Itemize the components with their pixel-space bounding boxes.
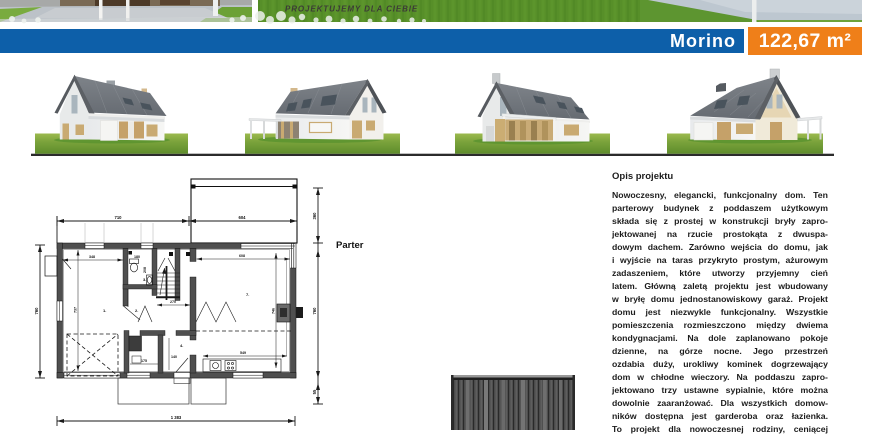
svg-text:1 383: 1 383 <box>171 415 182 420</box>
svg-text:1.: 1. <box>103 308 106 313</box>
svg-text:549: 549 <box>240 351 246 355</box>
svg-text:180: 180 <box>134 255 140 259</box>
svg-text:208: 208 <box>143 267 147 273</box>
svg-text:608: 608 <box>239 254 245 258</box>
svg-text:Parter: Parter <box>336 240 364 251</box>
svg-text:140: 140 <box>171 355 177 359</box>
svg-text:760: 760 <box>34 307 39 315</box>
svg-text:PROJEKTUJEMY DLA CIEBIE: PROJEKTUJEMY DLA CIEBIE <box>285 5 418 14</box>
svg-text:55: 55 <box>312 389 317 394</box>
svg-text:746: 746 <box>272 308 276 314</box>
svg-text:4.: 4. <box>180 343 183 348</box>
svg-text:7.: 7. <box>246 292 249 297</box>
svg-text:348: 348 <box>89 255 95 259</box>
svg-text:710: 710 <box>115 215 123 220</box>
svg-text:737: 737 <box>74 307 78 313</box>
svg-text:604: 604 <box>239 215 247 220</box>
svg-text:3.: 3. <box>143 277 146 282</box>
svg-text:175: 175 <box>141 359 147 363</box>
svg-text:360: 360 <box>312 212 317 220</box>
svg-text:760: 760 <box>312 307 317 315</box>
svg-text:2.: 2. <box>135 308 138 313</box>
svg-text:270: 270 <box>170 300 176 304</box>
